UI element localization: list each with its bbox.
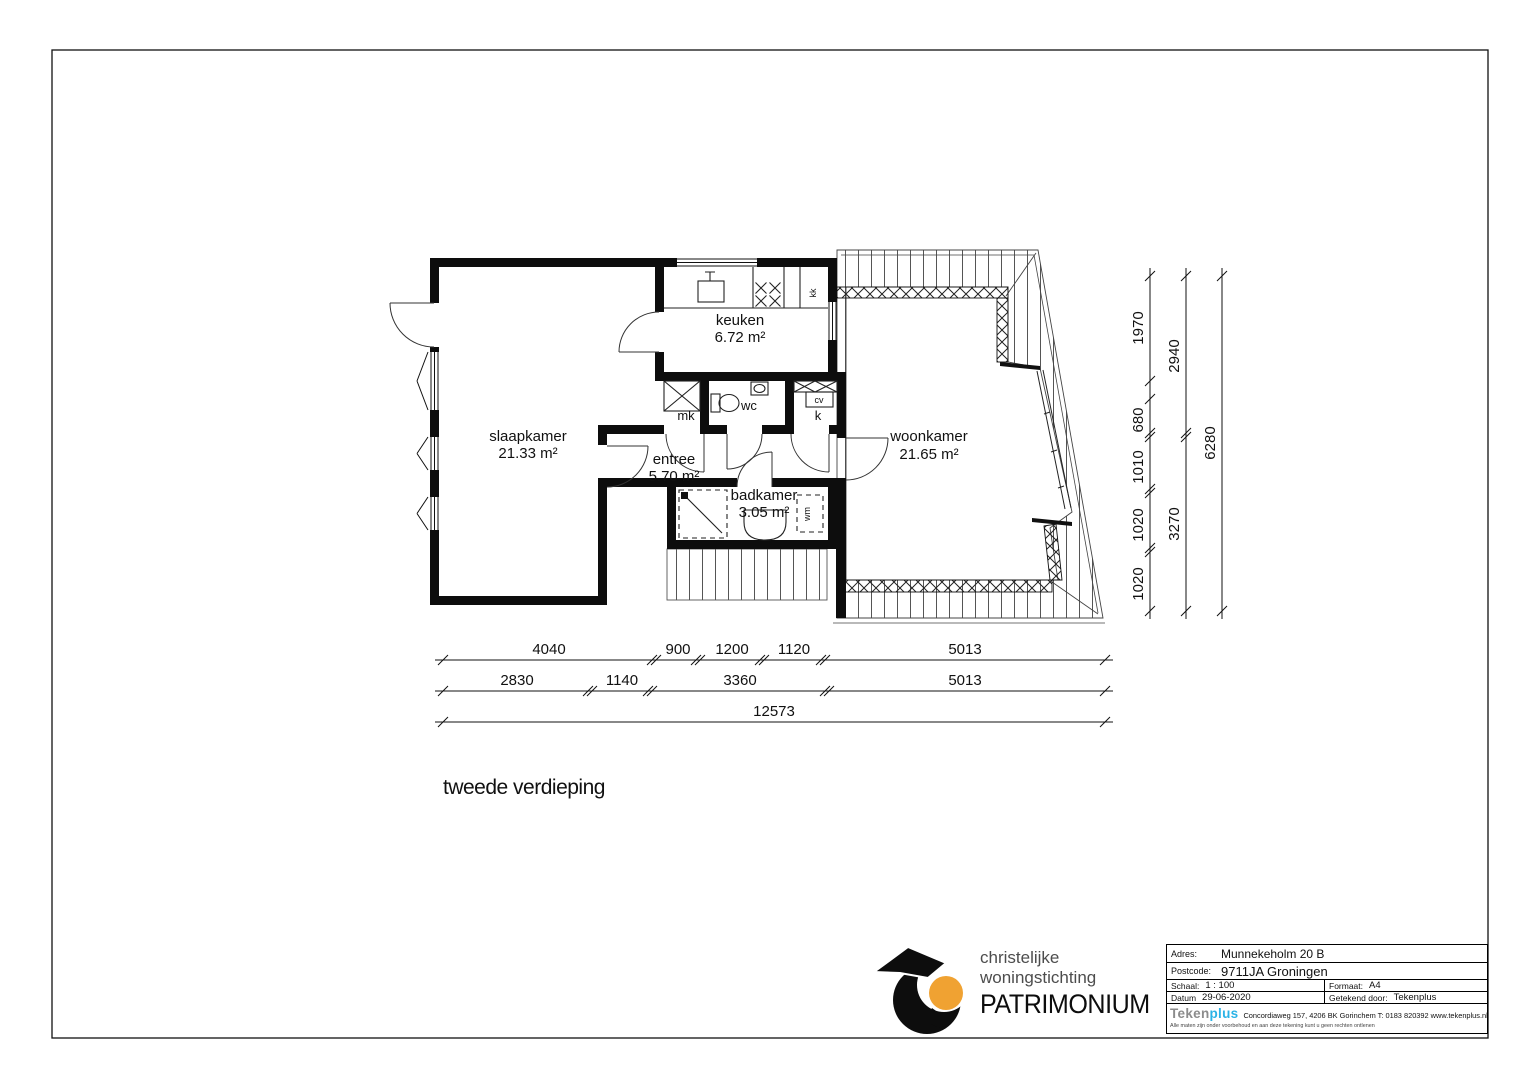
patrimonium-line1: christelijke bbox=[980, 948, 1163, 968]
title-row-adres: Adres: Munnekeholm 20 B bbox=[1167, 945, 1487, 963]
postcode-label: Postcode: bbox=[1171, 966, 1221, 976]
datum-cell: Datum 29-06-2020 bbox=[1167, 992, 1324, 1003]
label-wm: wm bbox=[802, 507, 812, 522]
area-woonkamer: 21.65 m² bbox=[899, 446, 958, 463]
adres-label: Adres: bbox=[1171, 949, 1221, 959]
dim-1020a: 1020 bbox=[1130, 508, 1147, 541]
area-entree: 5.70 m² bbox=[649, 468, 700, 485]
title-block: Adres: Munnekeholm 20 B Postcode: 9711JA… bbox=[1166, 944, 1488, 1034]
orange-ball bbox=[929, 976, 963, 1010]
dim-1120: 1120 bbox=[778, 641, 810, 658]
label-woonkamer: woonkamer bbox=[889, 428, 968, 445]
door-woonkamer bbox=[846, 438, 888, 480]
area-badkamer: 3.05 m² bbox=[739, 504, 790, 521]
kitchen-counter bbox=[664, 267, 828, 308]
window-slaapkamer-3 bbox=[417, 497, 438, 530]
dim-900: 900 bbox=[665, 641, 690, 658]
label-entree: entree bbox=[653, 451, 696, 468]
door-badkamer bbox=[737, 452, 772, 487]
door-wc bbox=[727, 434, 762, 469]
doors bbox=[390, 303, 888, 487]
firm-name-teken: Teken bbox=[1170, 1006, 1210, 1021]
wc-basin bbox=[751, 382, 768, 395]
shower bbox=[679, 490, 727, 538]
floor-title: tweede verdieping bbox=[443, 776, 605, 799]
dim-1970: 1970 bbox=[1130, 311, 1147, 344]
dim-5013a: 5013 bbox=[948, 641, 981, 658]
formaat-label: Formaat: bbox=[1329, 981, 1363, 991]
kitchen-stove bbox=[756, 283, 781, 307]
title-row-postcode: Postcode: 9711JA Groningen bbox=[1167, 963, 1487, 980]
window-slaapkamer-1 bbox=[417, 352, 438, 410]
getekend-label: Getekend door: bbox=[1329, 993, 1388, 1003]
patrimonium-mark-icon bbox=[872, 942, 974, 1038]
label-keuken: keuken bbox=[716, 312, 764, 329]
dim-3270: 3270 bbox=[1166, 507, 1183, 540]
label-kk: kk bbox=[808, 288, 818, 298]
terrace-strip bbox=[667, 549, 827, 600]
label-k: k bbox=[815, 408, 822, 423]
balcony-deck bbox=[837, 250, 1103, 618]
door-entry bbox=[390, 303, 434, 347]
adres-value: Munnekeholm 20 B bbox=[1221, 947, 1324, 961]
door-kast bbox=[791, 434, 829, 472]
label-wc: wc bbox=[740, 398, 757, 413]
formaat-cell: Formaat: A4 bbox=[1324, 980, 1487, 991]
toilet bbox=[711, 394, 739, 412]
area-keuken: 6.72 m² bbox=[715, 329, 766, 346]
dim-1200: 1200 bbox=[715, 641, 748, 658]
title-row-schaal-formaat: Schaal: 1 : 100 Formaat: A4 bbox=[1167, 980, 1487, 992]
dim-1140: 1140 bbox=[606, 672, 638, 689]
formaat-value: A4 bbox=[1369, 980, 1381, 991]
dim-labels-right: 1970 680 1010 1020 1020 2940 3270 6280 bbox=[1130, 311, 1219, 600]
label-mk: mk bbox=[677, 408, 695, 423]
dim-labels-bottom: 4040 900 1200 1120 5013 2830 1140 3360 5… bbox=[500, 641, 981, 720]
schaal-value: 1 : 100 bbox=[1205, 980, 1234, 991]
postcode-value: 9711JA Groningen bbox=[1221, 964, 1328, 979]
label-slaapkamer: slaapkamer bbox=[489, 428, 567, 445]
door-keuken bbox=[619, 312, 659, 352]
datum-label: Datum bbox=[1171, 993, 1196, 1003]
window-keuken-top bbox=[677, 259, 757, 266]
dim-1020b: 1020 bbox=[1130, 567, 1147, 600]
dim-5013b: 5013 bbox=[948, 672, 981, 689]
drawing-sheet: slaapkamer 21.33 m² keuken 6.72 m² entre… bbox=[0, 0, 1529, 1080]
dim-4040: 4040 bbox=[532, 641, 565, 658]
dim-680: 680 bbox=[1130, 407, 1147, 432]
getekend-cell: Getekend door: Tekenplus bbox=[1324, 992, 1487, 1003]
label-badkamer: badkamer bbox=[731, 487, 798, 504]
patrimonium-text: christelijke woningstichting PATRIMONIUM bbox=[980, 948, 1163, 1020]
window-slaapkamer-2 bbox=[417, 437, 438, 470]
window-keuken-right bbox=[829, 302, 836, 340]
firm-name-plus: plus bbox=[1210, 1006, 1239, 1021]
datum-value: 29-06-2020 bbox=[1202, 992, 1251, 1003]
title-row-firm: Tekenplus Concordiaweg 157, 4206 BK Gori… bbox=[1167, 1004, 1487, 1033]
title-row-datum-getekend: Datum 29-06-2020 Getekend door: Tekenplu… bbox=[1167, 992, 1487, 1004]
schaal-cell: Schaal: 1 : 100 bbox=[1167, 980, 1324, 991]
area-slaapkamer: 21.33 m² bbox=[498, 445, 557, 462]
floor-plan-svg: slaapkamer 21.33 m² keuken 6.72 m² entre… bbox=[0, 0, 1529, 1080]
dim-6280: 6280 bbox=[1202, 426, 1219, 459]
firm-address: Concordiaweg 157, 4206 BK Gorinchem T: 0… bbox=[1243, 1011, 1487, 1020]
patrimonium-line3: PATRIMONIUM bbox=[980, 989, 1150, 1020]
dim-12573: 12573 bbox=[753, 703, 795, 720]
patrimonium-line2: woningstichting bbox=[980, 968, 1163, 988]
meterkast-symbol bbox=[664, 381, 700, 411]
balcony bbox=[833, 250, 1105, 623]
label-cv: cv bbox=[815, 395, 825, 405]
firm-line: Tekenplus Concordiaweg 157, 4206 BK Gori… bbox=[1170, 1006, 1484, 1021]
patrimonium-logo: christelijke woningstichting PATRIMONIUM bbox=[872, 940, 1166, 1036]
getekend-value: Tekenplus bbox=[1394, 992, 1437, 1003]
schaal-label: Schaal: bbox=[1171, 981, 1199, 991]
dim-2830: 2830 bbox=[500, 672, 533, 689]
dim-3360: 3360 bbox=[723, 672, 756, 689]
dim-1010: 1010 bbox=[1130, 450, 1147, 483]
kitchen-sink bbox=[698, 272, 724, 302]
dim-2940: 2940 bbox=[1166, 339, 1183, 372]
firm-disclaimer: Alle maten zijn onder voorbehoud en aan … bbox=[1170, 1023, 1484, 1029]
